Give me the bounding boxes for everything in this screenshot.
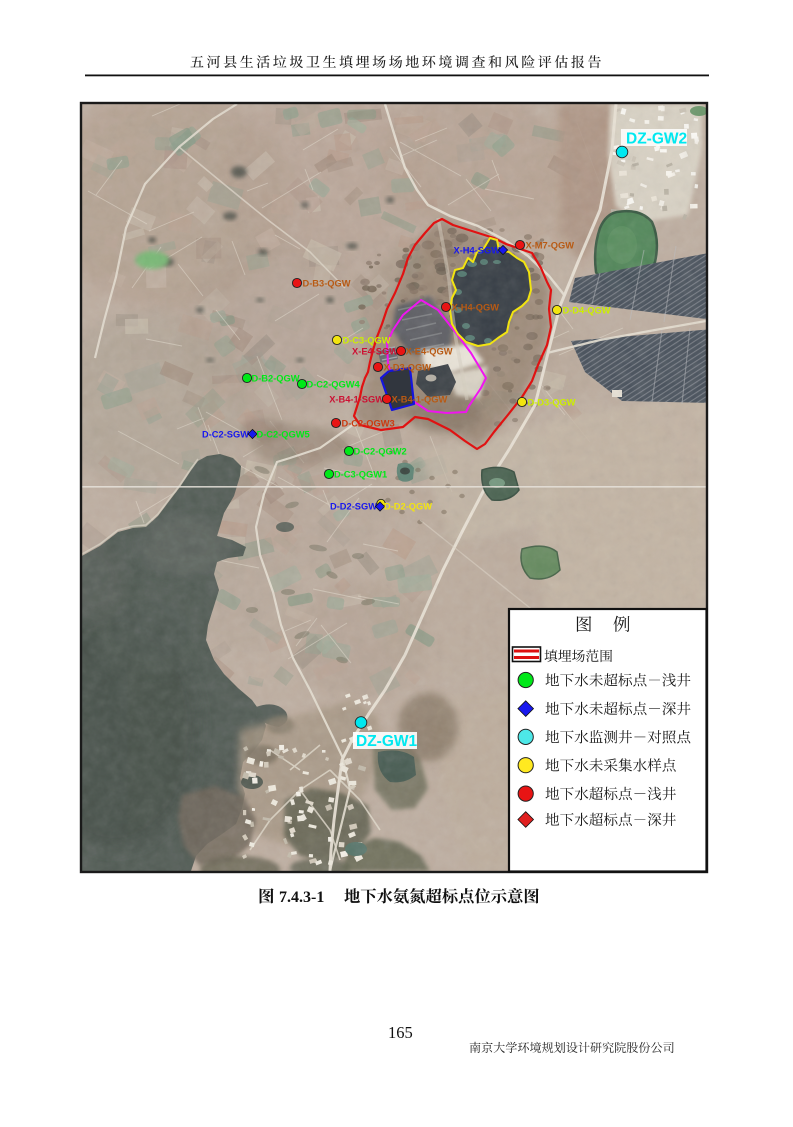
svg-text:D-C2-QGW5: D-C2-QGW5: [257, 430, 310, 440]
svg-text:165: 165: [388, 1023, 413, 1042]
svg-text:D-C2-QGW2: D-C2-QGW2: [354, 447, 407, 457]
svg-text:X-H4-SGW: X-H4-SGW: [454, 246, 501, 256]
svg-text:D-D2-QGW: D-D2-QGW: [384, 502, 432, 512]
svg-text:D-D3-QGW: D-D3-QGW: [528, 398, 576, 408]
svg-text:D-C2-QGW4: D-C2-QGW4: [307, 380, 361, 390]
svg-text:D-C2-QGW3: D-C2-QGW3: [342, 419, 395, 429]
svg-text:D-B3-QGW: D-B3-QGW: [303, 279, 351, 289]
svg-text:X-D3-QGW: X-D3-QGW: [384, 363, 432, 373]
svg-text:D-B2-QGW: D-B2-QGW: [252, 374, 300, 384]
svg-text:X-E4-SGW: X-E4-SGW: [352, 347, 398, 357]
svg-text:D-D2-SGW: D-D2-SGW: [330, 502, 377, 512]
svg-text:X-B4-1-QGW: X-B4-1-QGW: [392, 395, 448, 405]
svg-text:DZ-GW1: DZ-GW1: [356, 733, 418, 750]
svg-text:D-D4-QGW: D-D4-QGW: [563, 306, 611, 316]
svg-text:X-M7-QGW: X-M7-QGW: [526, 241, 575, 251]
svg-text:X-B4-1-SGW: X-B4-1-SGW: [329, 395, 384, 405]
svg-text:D-C3-QGW1: D-C3-QGW1: [334, 470, 387, 480]
svg-text:X-H4-QGW: X-H4-QGW: [452, 303, 500, 313]
svg-text:D-C3-QGW: D-C3-QGW: [343, 336, 391, 346]
svg-text:D-C2-SGW: D-C2-SGW: [202, 430, 249, 440]
svg-text:X-E4-QGW: X-E4-QGW: [406, 347, 453, 357]
svg-text:7.4.3-1: 7.4.3-1: [279, 889, 324, 906]
svg-text:DZ-GW2: DZ-GW2: [626, 131, 687, 148]
